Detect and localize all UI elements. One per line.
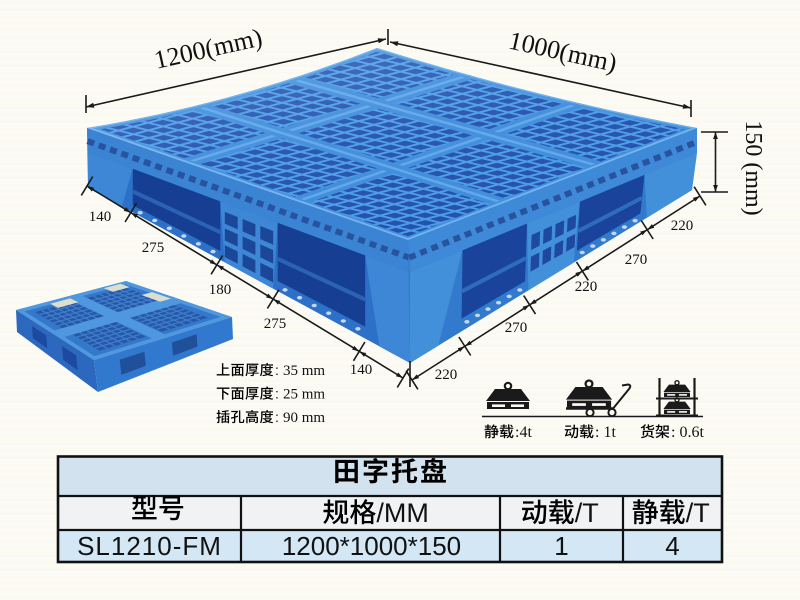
svg-text::4t: :4t	[515, 424, 532, 441]
svg-text:220: 220	[671, 218, 694, 234]
svg-text:SL1210-FM: SL1210-FM	[77, 531, 222, 561]
svg-text:90 mm: 90 mm	[283, 410, 325, 426]
svg-text:25 mm: 25 mm	[283, 387, 325, 403]
svg-text:/MM: /MM	[376, 498, 428, 528]
svg-text:4: 4	[665, 531, 679, 561]
svg-text:/T: /T	[686, 498, 710, 528]
svg-text:220: 220	[575, 279, 598, 295]
svg-text:/T: /T	[575, 498, 599, 528]
svg-text:140: 140	[350, 362, 373, 378]
svg-text:35 mm: 35 mm	[283, 363, 325, 379]
svg-text:1: 1	[554, 531, 568, 561]
svg-text::: :	[275, 409, 279, 425]
svg-text:150 (mm): 150 (mm)	[740, 120, 766, 215]
svg-text:275: 275	[142, 240, 165, 256]
svg-text:275: 275	[264, 316, 287, 332]
svg-text:180: 180	[209, 282, 232, 298]
svg-text:1200*1000*150: 1200*1000*150	[282, 531, 461, 561]
svg-text::: :	[275, 386, 279, 402]
svg-text:270: 270	[625, 252, 648, 268]
svg-text:: 1t: : 1t	[595, 424, 616, 441]
svg-text:220: 220	[435, 367, 458, 383]
svg-text::: :	[275, 362, 279, 378]
svg-text:140: 140	[89, 209, 112, 225]
svg-text:: 0.6t: : 0.6t	[671, 424, 704, 441]
svg-text:270: 270	[505, 320, 528, 336]
